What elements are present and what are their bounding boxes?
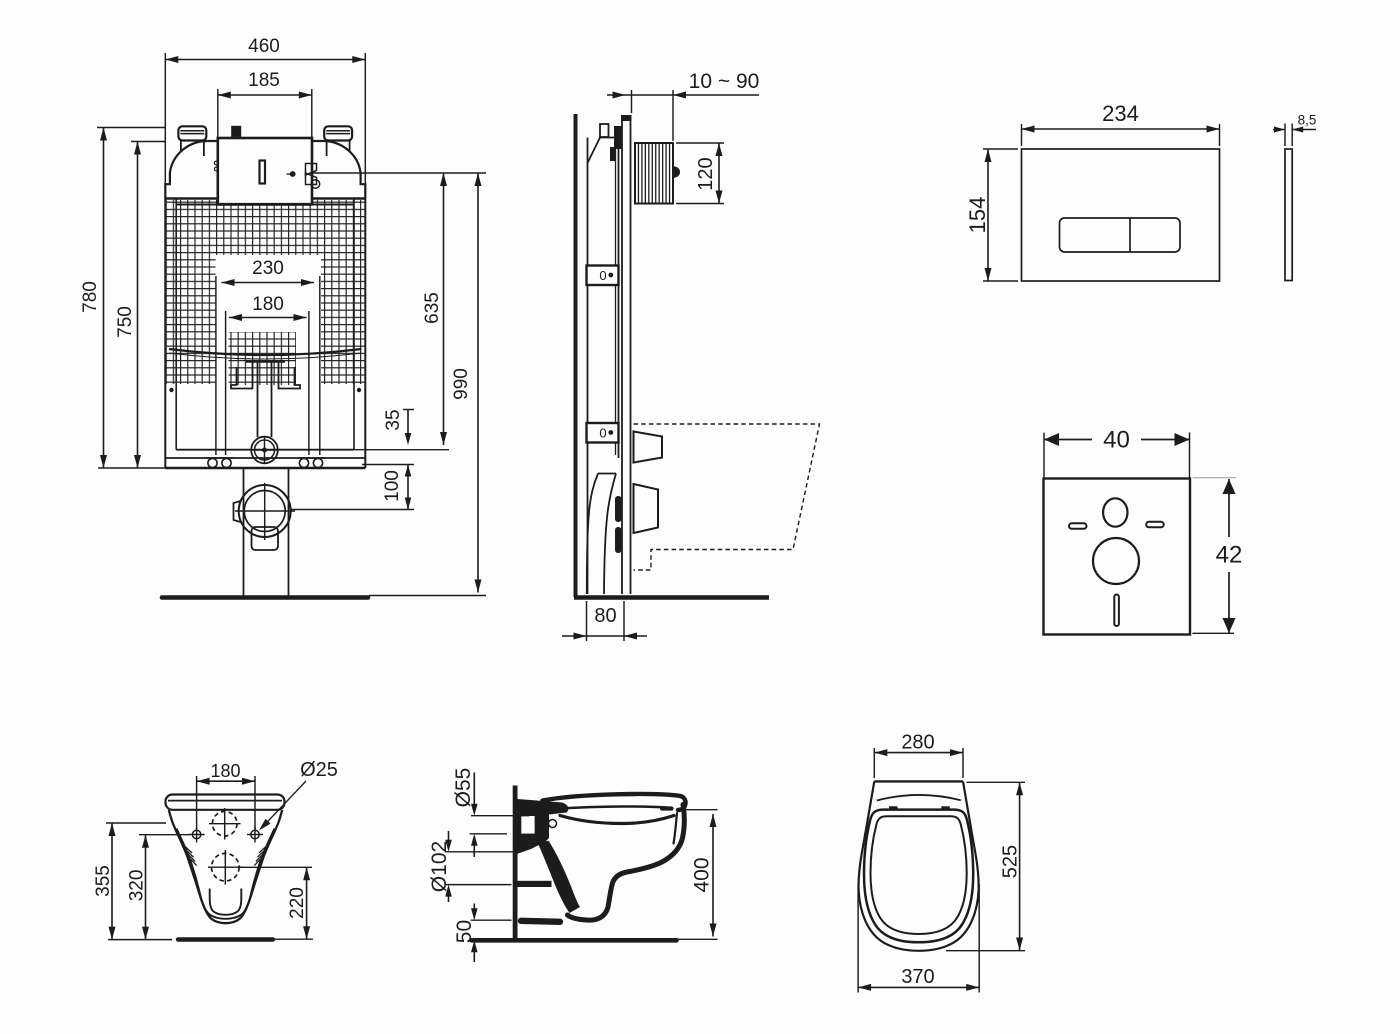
svg-text:100: 100 bbox=[382, 470, 403, 502]
svg-text:80: 80 bbox=[594, 605, 616, 627]
svg-text:400: 400 bbox=[691, 857, 714, 892]
svg-text:220: 220 bbox=[287, 887, 308, 919]
svg-text:635: 635 bbox=[422, 292, 443, 324]
svg-text:525: 525 bbox=[1000, 845, 1022, 878]
svg-text:460: 460 bbox=[248, 36, 280, 57]
svg-text:50: 50 bbox=[453, 920, 476, 943]
svg-text:180: 180 bbox=[210, 761, 240, 781]
svg-text:180: 180 bbox=[252, 294, 284, 315]
svg-text:120: 120 bbox=[695, 157, 717, 190]
svg-text:154: 154 bbox=[965, 197, 990, 234]
svg-text:185: 185 bbox=[248, 70, 280, 91]
svg-text:10 ~ 90: 10 ~ 90 bbox=[689, 70, 760, 93]
svg-text:750: 750 bbox=[115, 306, 136, 338]
svg-text:990: 990 bbox=[451, 368, 472, 400]
svg-text:370: 370 bbox=[901, 966, 934, 988]
svg-text:0: 0 bbox=[599, 268, 606, 283]
svg-text:Ø25: Ø25 bbox=[300, 759, 338, 781]
svg-text:780: 780 bbox=[80, 281, 101, 313]
svg-text:40: 40 bbox=[1103, 427, 1130, 454]
svg-text:230: 230 bbox=[252, 258, 284, 279]
svg-text:234: 234 bbox=[1102, 101, 1139, 126]
svg-text:280: 280 bbox=[901, 732, 934, 754]
svg-text:355: 355 bbox=[93, 865, 114, 897]
svg-text:35: 35 bbox=[383, 409, 404, 430]
svg-text:320: 320 bbox=[127, 870, 148, 902]
svg-text:42: 42 bbox=[1216, 542, 1243, 569]
svg-text:0: 0 bbox=[599, 426, 606, 441]
svg-text:8,5: 8,5 bbox=[1298, 113, 1317, 128]
svg-text:Ø55: Ø55 bbox=[452, 768, 475, 808]
